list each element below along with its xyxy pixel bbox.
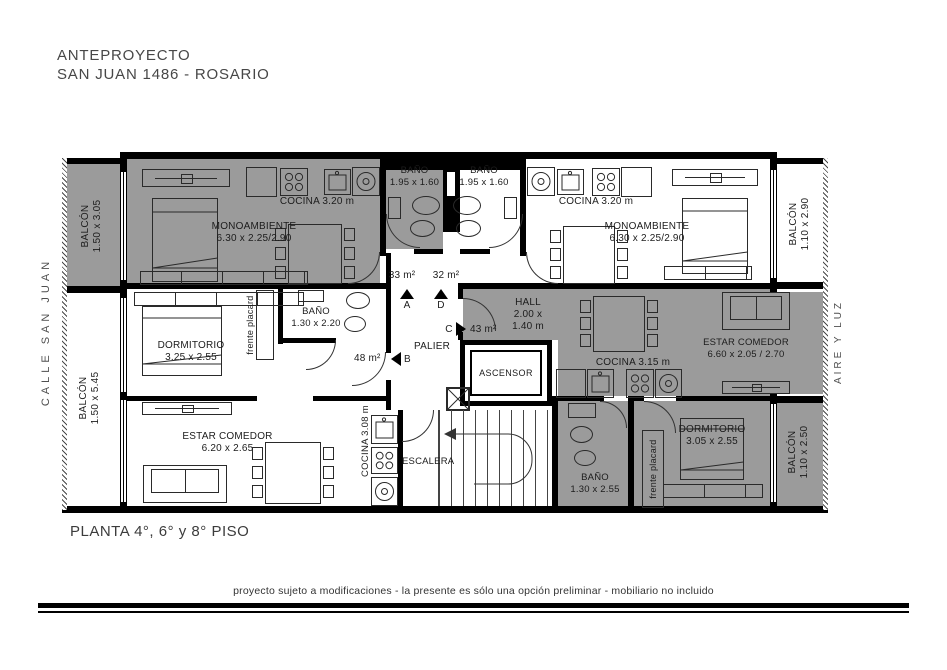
room-name: HALL: [504, 297, 552, 309]
unit-a-bath-label: BAÑO 1.95 x 1.60: [386, 165, 443, 189]
room-dims: 3.25 x 2.55: [148, 352, 234, 364]
wall: [62, 158, 120, 164]
room-name: BAÑO: [448, 165, 520, 177]
unit-b-area-label: 48 m²: [354, 353, 381, 365]
entry-letter-b: B: [404, 354, 411, 366]
sink-icon: [324, 169, 351, 195]
unit-b-bedroom-label: DORMITORIO 3.25 x 2.55: [148, 340, 234, 364]
unit-b-bath-label: BAÑO 1.30 x 2.20: [286, 306, 346, 330]
entry-letter-a: A: [399, 300, 415, 312]
room-dims: 1.95 x 1.60: [386, 177, 443, 189]
laundry-icon: [527, 167, 555, 196]
wall: [62, 286, 120, 293]
bench-symbol: [663, 484, 763, 498]
stove-icon: [626, 369, 654, 398]
wall: [777, 282, 828, 289]
room-dims: 6.60 x 2.05 / 2.70: [692, 349, 800, 361]
unit-c-kitchen-label: COCINA 3.15 m: [590, 357, 676, 369]
tv-cabinet-symbol: [672, 169, 758, 186]
unit-a-area-label: 33 m²: [386, 270, 418, 282]
door-arc: [402, 410, 434, 442]
sheet-title: ANTEPROYECTO SAN JUAN 1486 - ROSARIO: [57, 46, 270, 84]
duct-shaft-icon: [446, 387, 470, 411]
room-name: BAÑO: [286, 306, 346, 318]
fridge-symbol: [246, 167, 277, 197]
room-name: BALCÓN: [788, 198, 800, 251]
footer-rule-thick: [38, 603, 909, 608]
stove-icon: [371, 447, 398, 474]
tv-cabinet-symbol: [142, 169, 230, 187]
stove-icon: [280, 168, 308, 196]
bath-sink-symbol: [388, 197, 401, 219]
unit-c-area-label: 43 m²: [470, 324, 497, 336]
bidet-symbol: [456, 220, 481, 237]
entry-arrow-a-icon: [400, 289, 414, 299]
oven-icon: [655, 369, 682, 398]
toilet-symbol: [453, 196, 481, 215]
room-name: DORMITORIO: [668, 424, 756, 436]
room-dims: 1.50 x 5.45: [90, 372, 102, 425]
balcony-bottom-right-label: BALCÓN 1.10 x 2.50: [787, 426, 811, 479]
air-light-label: AIRE Y LUZ: [833, 300, 845, 384]
bath-sink-symbol: [568, 403, 596, 418]
sink-icon: [557, 169, 584, 195]
stairs-direction-arrow: [440, 418, 552, 498]
room-name: DORMITORIO: [148, 340, 234, 352]
wall: [676, 396, 777, 401]
room-dims: 1.95 x 1.60: [448, 177, 520, 189]
unit-a-kitchen-label: COCINA 3.20 m: [277, 196, 357, 208]
room-dims: 1.40 m: [504, 321, 552, 333]
wall: [62, 506, 828, 513]
sofa-symbol: [143, 465, 227, 503]
unit-a-room-label: MONOAMBIENTE 6.30 x 2.25/2.90: [204, 221, 304, 245]
closet-symbol: [256, 290, 274, 360]
room-name: BAÑO: [564, 472, 626, 484]
bidet-symbol: [344, 316, 366, 332]
window: [120, 400, 127, 502]
elevator: ASCENSOR: [460, 340, 552, 406]
entry-arrow-c-icon: [456, 322, 466, 336]
floor-label: PLANTA 4°, 6° y 8° PISO: [70, 526, 249, 538]
room-name: ESTAR COMEDOR: [692, 337, 800, 349]
room-dims: 1.10 x 2.90: [800, 198, 812, 251]
unit-d-room-label: MONOAMBIENTE 6.30 x 2.25/2.90: [597, 221, 697, 245]
entry-letter-c: C: [442, 324, 456, 336]
room-dims: 3.05 x 2.55: [668, 436, 756, 448]
wall: [458, 283, 777, 289]
wall: [127, 396, 257, 401]
window: [120, 172, 127, 280]
project-type: ANTEPROYECTO: [57, 46, 270, 65]
wall: [520, 152, 526, 256]
footer-rule-thin: [38, 611, 909, 613]
elevator-cab: ASCENSOR: [470, 350, 542, 396]
tv-cabinet-symbol: [722, 381, 790, 394]
balcony-bottom-left-label: BALCÓN 1.50 x 5.45: [78, 372, 102, 425]
entry-arrow-b-icon: [391, 352, 401, 366]
wall: [460, 249, 490, 254]
unit-b-closet-label: frente placard: [244, 295, 256, 354]
sink-icon: [587, 369, 614, 398]
toilet-symbol: [412, 196, 440, 215]
balcony-railing: [823, 158, 828, 510]
window: [120, 298, 127, 392]
room-name: MONOAMBIENTE: [204, 221, 304, 233]
floor-plan-sheet: ANTEPROYECTO SAN JUAN 1486 - ROSARIO CAL…: [0, 0, 947, 670]
bench-symbol: [664, 266, 752, 280]
disclaimer-text: proyecto sujeto a modificaciones - la pr…: [0, 585, 947, 597]
project-address: SAN JUAN 1486 - ROSARIO: [57, 65, 270, 84]
window: [770, 170, 777, 278]
unit-c-living-label: ESTAR COMEDOR 6.60 x 2.05 / 2.70: [692, 337, 800, 361]
unit-c-bath-label: BAÑO 1.30 x 2.55: [564, 472, 626, 496]
wall: [628, 396, 634, 508]
unit-c-hall-label: HALL 2.00 x 1.40 m: [504, 297, 552, 333]
room-dims: 1.30 x 2.20: [286, 318, 346, 330]
street-label: CALLE SAN JUAN: [40, 258, 52, 406]
room-dims: 6.30 x 2.25/2.90: [597, 233, 697, 245]
entry-arrow-d-icon: [434, 289, 448, 299]
bidet-symbol: [574, 450, 596, 466]
tv-cabinet-symbol: [142, 402, 232, 415]
wall: [313, 396, 388, 401]
door-arc: [306, 340, 336, 370]
bath-sink-symbol: [298, 290, 324, 302]
room-name: BALCÓN: [78, 372, 90, 425]
oven-icon: [371, 477, 398, 506]
unit-c-bedroom-label: DORMITORIO 3.05 x 2.55: [668, 424, 756, 448]
toilet-symbol: [346, 292, 370, 309]
toilet-symbol: [570, 426, 593, 443]
dining-table-symbol: [265, 442, 321, 504]
door-arc: [489, 214, 523, 248]
balcony-top-left-label: BALCÓN 1.50 x 3.05: [80, 200, 104, 253]
unit-d-area-label: 32 m²: [428, 270, 464, 282]
unit-c-closet-label: frente placard: [647, 439, 659, 498]
sink-icon: [371, 415, 398, 444]
unit-d-kitchen-label: COCINA 3.20 m: [551, 196, 641, 208]
room-dims: 2.00 x: [504, 309, 552, 321]
bidet-symbol: [410, 220, 435, 237]
wall: [414, 249, 443, 254]
wall: [777, 158, 828, 164]
room-dims: 1.50 x 3.05: [92, 200, 104, 253]
wall: [386, 380, 391, 410]
fridge-symbol: [621, 167, 652, 197]
wall: [386, 253, 391, 353]
room-dims: 6.30 x 2.25/2.90: [204, 233, 304, 245]
balcony-top-right-label: BALCÓN 1.10 x 2.90: [788, 198, 812, 251]
room-dims: 1.30 x 2.55: [564, 484, 626, 496]
counter-symbol: [556, 369, 586, 398]
room-name: BALCÓN: [787, 426, 799, 479]
window: [770, 404, 777, 502]
bath-sink-symbol: [504, 197, 517, 219]
wall: [777, 396, 828, 403]
dining-table-symbol: [593, 296, 645, 352]
room-name: MONOAMBIENTE: [597, 221, 697, 233]
room-name: BAÑO: [386, 165, 443, 177]
sofa-symbol: [722, 292, 790, 330]
room-dims: 1.10 x 2.50: [799, 426, 811, 479]
headboard-shelf-symbol: [134, 292, 304, 306]
stove-icon: [592, 168, 620, 196]
room-name: BALCÓN: [80, 200, 92, 253]
balcony-railing: [62, 158, 67, 510]
stairs-label: ESCALERA: [402, 456, 454, 468]
unit-d-bath-label: BAÑO 1.95 x 1.60: [448, 165, 520, 189]
palier-label: PALIER: [408, 341, 456, 353]
entry-letter-d: D: [433, 300, 449, 312]
laundry-icon: [352, 167, 380, 196]
